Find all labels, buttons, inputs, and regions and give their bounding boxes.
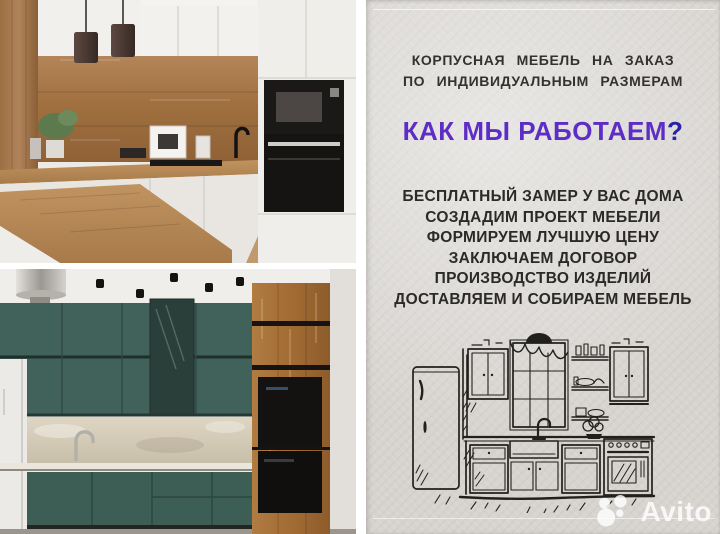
tagline-line2: ПО ИНДИВИДУАЛЬНЫМ РАЗМЕРАМ (366, 71, 720, 92)
photo1-counter-and-base (0, 160, 258, 263)
sketch-sink-unit (510, 441, 558, 490)
step-item: ДОСТАВЛЯЕМ И СОБИРАЕМ МЕБЕЛЬ (366, 290, 720, 311)
avito-watermark-text: Avito (641, 496, 712, 528)
sketch-dome-lamp (526, 333, 552, 343)
photo2-base-cabinets (0, 463, 252, 529)
sketch-fridge (413, 367, 459, 489)
heading-text: КАК МЫ РАБОТАЕМ (403, 116, 667, 146)
sketch-base-cabinet-left (470, 445, 508, 493)
step-item: ФОРМИРУЕМ ЛУЧШУЮ ЦЕНУ (366, 228, 720, 249)
sketch-stove (604, 439, 652, 495)
avito-watermark: Avito (594, 494, 712, 529)
step-item: СОЗДАДИМ ПРОЕКТ МЕБЕЛИ (366, 208, 720, 229)
sketch-window (510, 333, 568, 439)
tagline-line1: КОРПУСНАЯ МЕБЕЛЬ НА ЗАКАЗ (366, 50, 720, 71)
heading-question-mark: ? (667, 116, 683, 146)
sketch-wall-edge (463, 349, 467, 439)
heading: КАК МЫ РАБОТАЕМ? (366, 116, 720, 147)
sketch-wall-cabinet-right (610, 339, 648, 404)
step-item: ПРОИЗВОДСТВО ИЗДЕЛИЙ (366, 269, 720, 290)
photo2-wood-column (252, 283, 330, 534)
sketch-shelves (572, 344, 608, 420)
photo2-backsplash (0, 417, 252, 463)
avito-logo-icon (594, 494, 638, 529)
sketch-base-cabinet-right (562, 445, 600, 493)
ad-banner: КОРПУСНАЯ МЕБЕЛЬ НА ЗАКАЗ ПО ИНДИВИДУАЛЬ… (0, 0, 720, 534)
step-item: БЕСПЛАТНЫЙ ЗАМЕР У ВАС ДОМА (366, 187, 720, 208)
photo1-appliance-column (258, 0, 356, 263)
photo-kitchen-white-wood (0, 0, 356, 263)
info-panel: КОРПУСНАЯ МЕБЕЛЬ НА ЗАКАЗ ПО ИНДИВИДУАЛЬ… (366, 0, 720, 534)
photo-kitchen-teal (0, 269, 356, 534)
sketch-wall-cabinet-left (466, 340, 508, 412)
photo1-wood-backsplash (38, 56, 258, 162)
tagline: КОРПУСНАЯ МЕБЕЛЬ НА ЗАКАЗ ПО ИНДИВИДУАЛЬ… (366, 50, 720, 92)
photo2-upper-teal-cabinets (0, 299, 252, 415)
kitchen-sketch-illustration (380, 331, 710, 513)
step-item: ЗАКЛЮЧАЕМ ДОГОВОР (366, 249, 720, 270)
photo2-fridge (0, 359, 27, 534)
steps-list: БЕСПЛАТНЫЙ ЗАМЕР У ВАС ДОМА СОЗДАДИМ ПРО… (366, 187, 720, 310)
